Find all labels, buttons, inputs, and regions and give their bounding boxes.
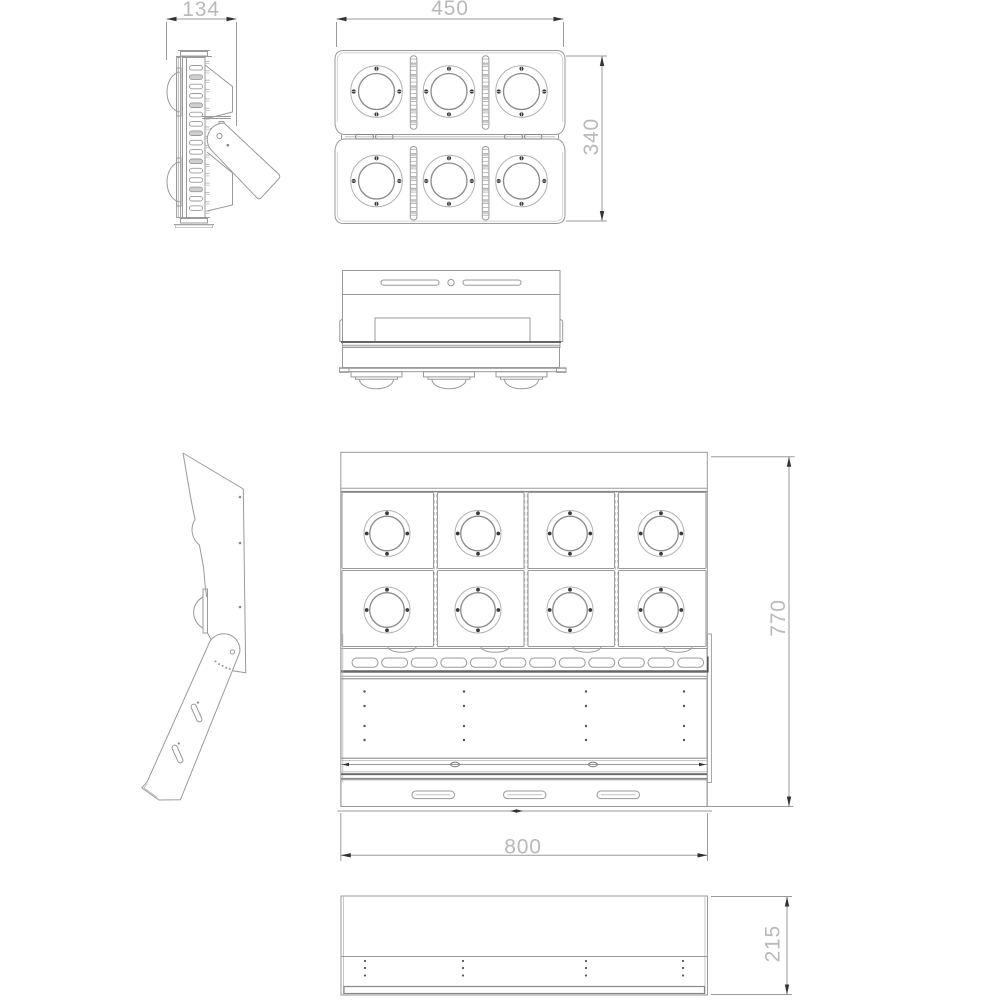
svg-text:450: 450: [431, 0, 468, 20]
svg-text:800: 800: [504, 836, 541, 859]
svg-text:134: 134: [182, 0, 219, 21]
svg-text:215: 215: [762, 925, 785, 962]
svg-text:340: 340: [580, 118, 603, 155]
svg-text:770: 770: [767, 599, 790, 636]
